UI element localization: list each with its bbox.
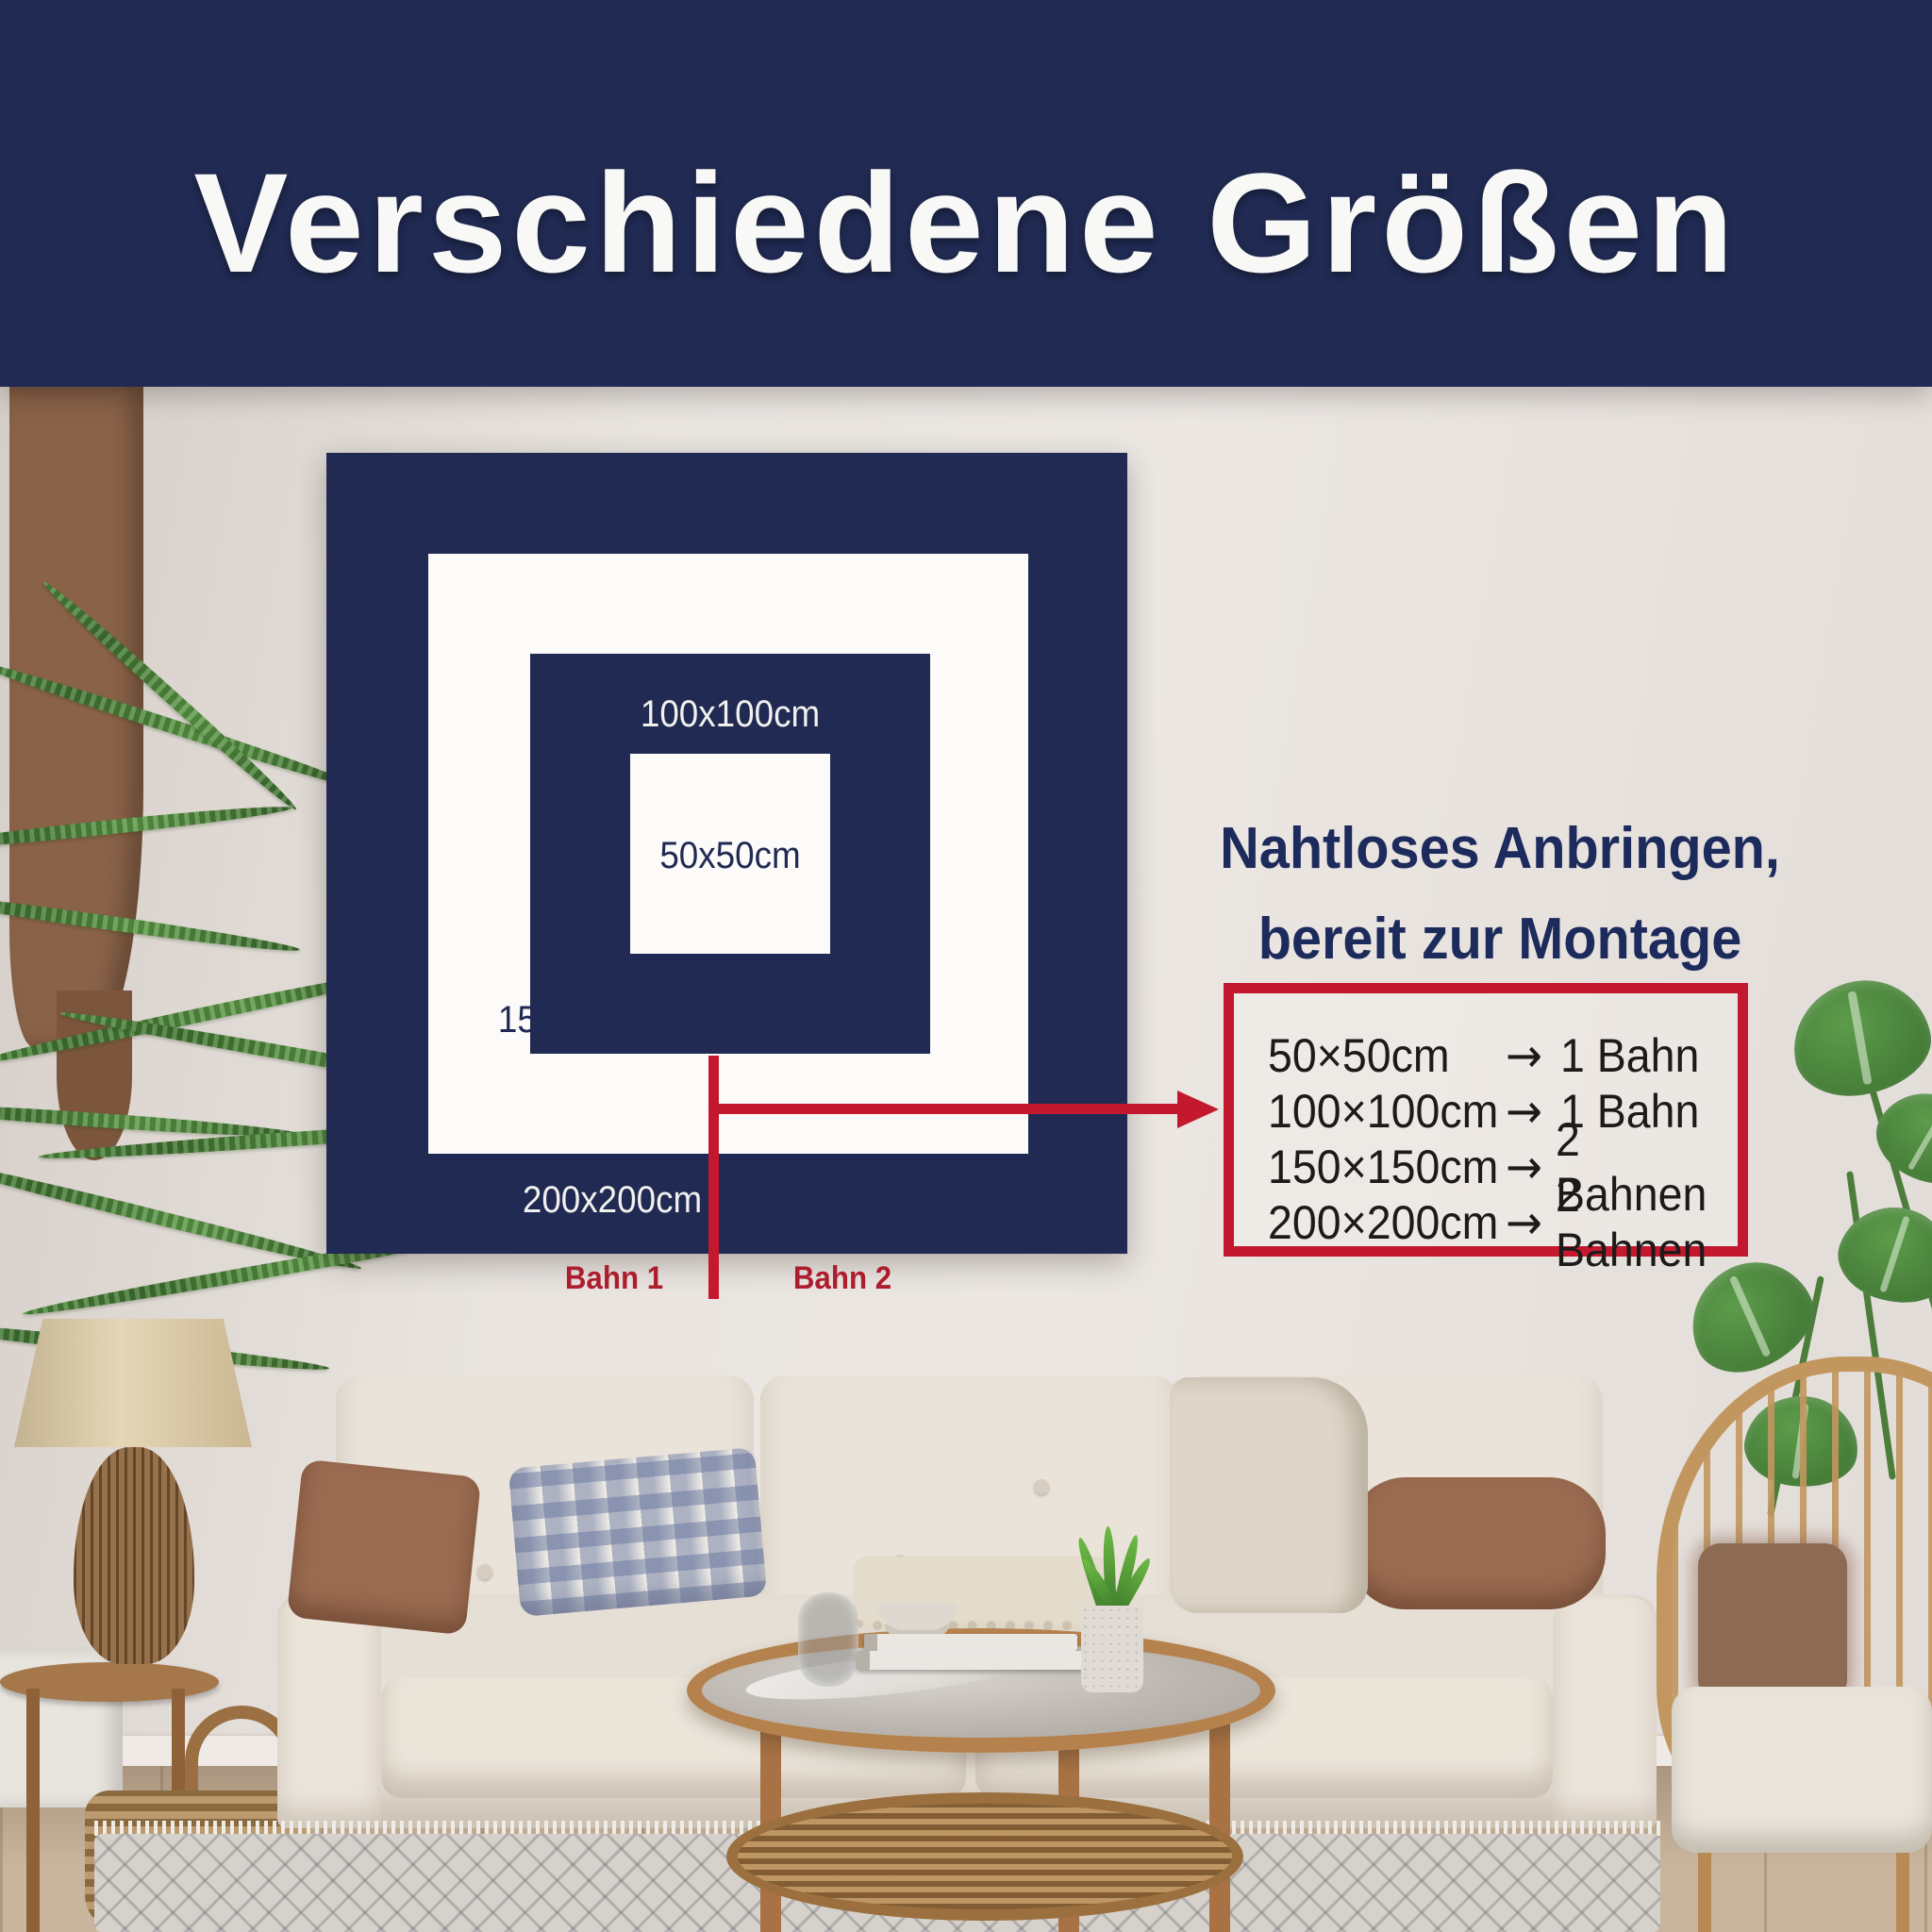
table-lower-shelf	[726, 1792, 1243, 1921]
bahn-2-label: Bahn 2	[782, 1260, 904, 1297]
size-label-150: 150x150cm	[479, 999, 696, 1041]
side-table-leg	[26, 1689, 40, 1932]
velvet-pillow-left	[287, 1459, 482, 1636]
table-plant-pot	[1081, 1606, 1143, 1692]
mounting-heading-line2: bereit zur Montage	[1219, 894, 1780, 985]
size-square-50: 50x50cm	[630, 754, 830, 954]
row-size: 100×100cm	[1268, 1084, 1489, 1139]
panel-row: 200×200cm → 2 Bahnen	[1268, 1194, 1740, 1250]
size-label-50: 50x50cm	[638, 835, 822, 877]
row-panels: 2 Bahnen	[1556, 1168, 1726, 1277]
row-size: 200×200cm	[1268, 1195, 1489, 1250]
arrow-line	[714, 1104, 1182, 1114]
row-arrow-icon: →	[1506, 1028, 1557, 1083]
glass-decanter	[798, 1592, 858, 1687]
sofa-armrest-right	[1553, 1598, 1657, 1828]
panel-count-table: 50×50cm → 1 Bahn 100×100cm → 1 Bahn 150×…	[1268, 1027, 1740, 1250]
row-arrow-icon: →	[1506, 1084, 1557, 1139]
row-panels: 1 Bahn	[1560, 1028, 1699, 1083]
velvet-pillow-right	[1349, 1477, 1606, 1609]
panel-row: 50×50cm → 1 Bahn	[1268, 1027, 1740, 1083]
row-size: 150×150cm	[1268, 1140, 1489, 1194]
size-label-200: 200x200cm	[504, 1179, 721, 1222]
row-arrow-icon: →	[1506, 1140, 1552, 1194]
row-arrow-icon: →	[1506, 1195, 1552, 1250]
mounting-heading: Nahtloses Anbringen, bereit zur Montage	[1219, 804, 1780, 985]
gingham-pillow	[508, 1447, 768, 1617]
throw-blanket	[1170, 1377, 1368, 1613]
size-square-200: 100x100cm 50x50cm 150x150cm 200x200cm	[326, 453, 1127, 1254]
chair-cushion	[1672, 1687, 1932, 1853]
mounting-heading-line1: Nahtloses Anbringen,	[1219, 804, 1780, 894]
bahn-1-label: Bahn 1	[554, 1260, 675, 1297]
sofa-armrest-left	[277, 1598, 381, 1828]
panel-count-box: 50×50cm → 1 Bahn 100×100cm → 1 Bahn 150×…	[1224, 983, 1748, 1257]
product-size-infographic: Verschiedene Größen 100x100cm 50x50cm 15…	[0, 0, 1932, 1932]
row-size: 50×50cm	[1268, 1028, 1489, 1083]
chair-pillow	[1698, 1543, 1847, 1702]
book	[857, 1651, 1083, 1670]
floor-lamp-shade	[14, 1319, 252, 1447]
seam-line-vertical	[708, 1056, 719, 1299]
size-square-100: 100x100cm 50x50cm	[530, 654, 930, 1054]
size-square-150: 100x100cm 50x50cm 150x150cm	[428, 554, 1028, 1154]
book	[864, 1634, 1077, 1651]
size-label-100: 100x100cm	[546, 693, 914, 736]
arrow-right-icon	[1177, 1091, 1219, 1128]
header-banner: Verschiedene Größen	[0, 0, 1932, 387]
page-title: Verschiedene Größen	[0, 142, 1932, 305]
